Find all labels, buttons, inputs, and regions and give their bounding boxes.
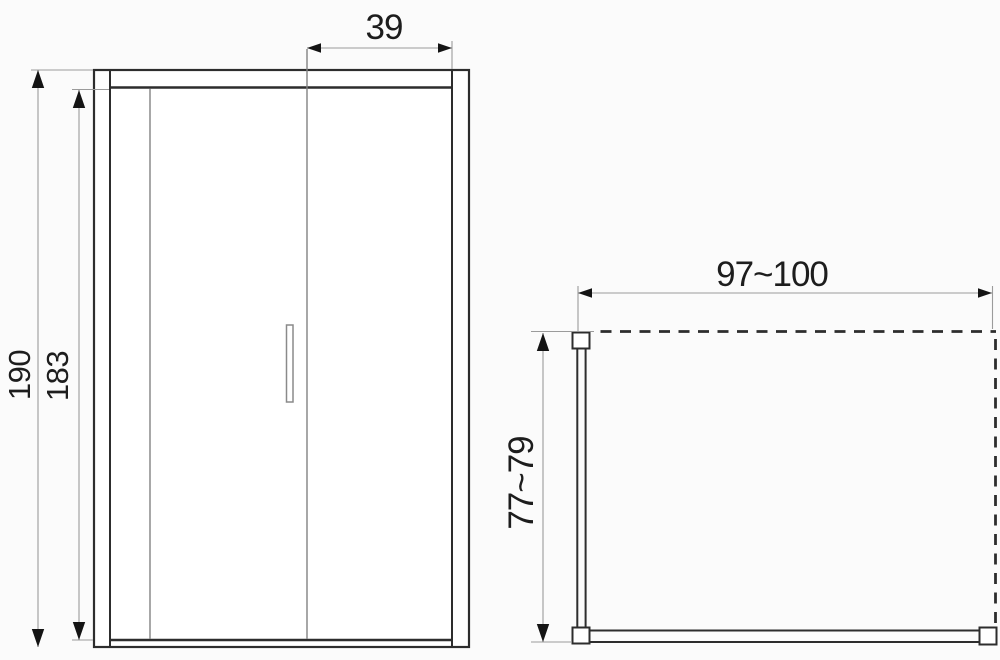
shower-door-technical-drawing: 39 190 183 <box>0 0 1000 660</box>
arrow-right-icon <box>438 43 452 53</box>
door-handle <box>287 325 294 402</box>
arrow-down-icon <box>537 624 549 642</box>
arrow-right-icon <box>978 288 992 298</box>
arrow-left-icon <box>307 43 321 53</box>
dimension-door-panel-width: 39 <box>307 8 452 69</box>
wall-profile-top-left <box>573 333 590 349</box>
arrow-left-icon <box>578 288 592 298</box>
drawing-canvas: 39 190 183 <box>0 0 1000 660</box>
dimension-enclosure-depth: 77~79 <box>502 332 594 643</box>
wall-profile-bottom-left <box>573 628 590 644</box>
top-view-dimensions: 97~100 77~79 <box>502 255 993 642</box>
dim-label-183: 183 <box>40 351 75 401</box>
dim-label-39: 39 <box>366 8 403 47</box>
dimension-enclosure-width: 97~100 <box>578 255 993 332</box>
dim-label-77-79: 77~79 <box>502 436 541 529</box>
dim-label-97-100: 97~100 <box>716 255 828 294</box>
arrow-down-icon <box>73 622 85 640</box>
arrow-down-icon <box>32 629 44 647</box>
arrow-up-icon <box>32 70 44 88</box>
wall-profile-bottom-right <box>980 628 997 645</box>
dim-label-190: 190 <box>2 350 37 400</box>
arrow-up-icon <box>537 333 549 351</box>
top-view <box>573 332 997 645</box>
front-view <box>94 49 469 647</box>
arrow-up-icon <box>73 90 85 108</box>
